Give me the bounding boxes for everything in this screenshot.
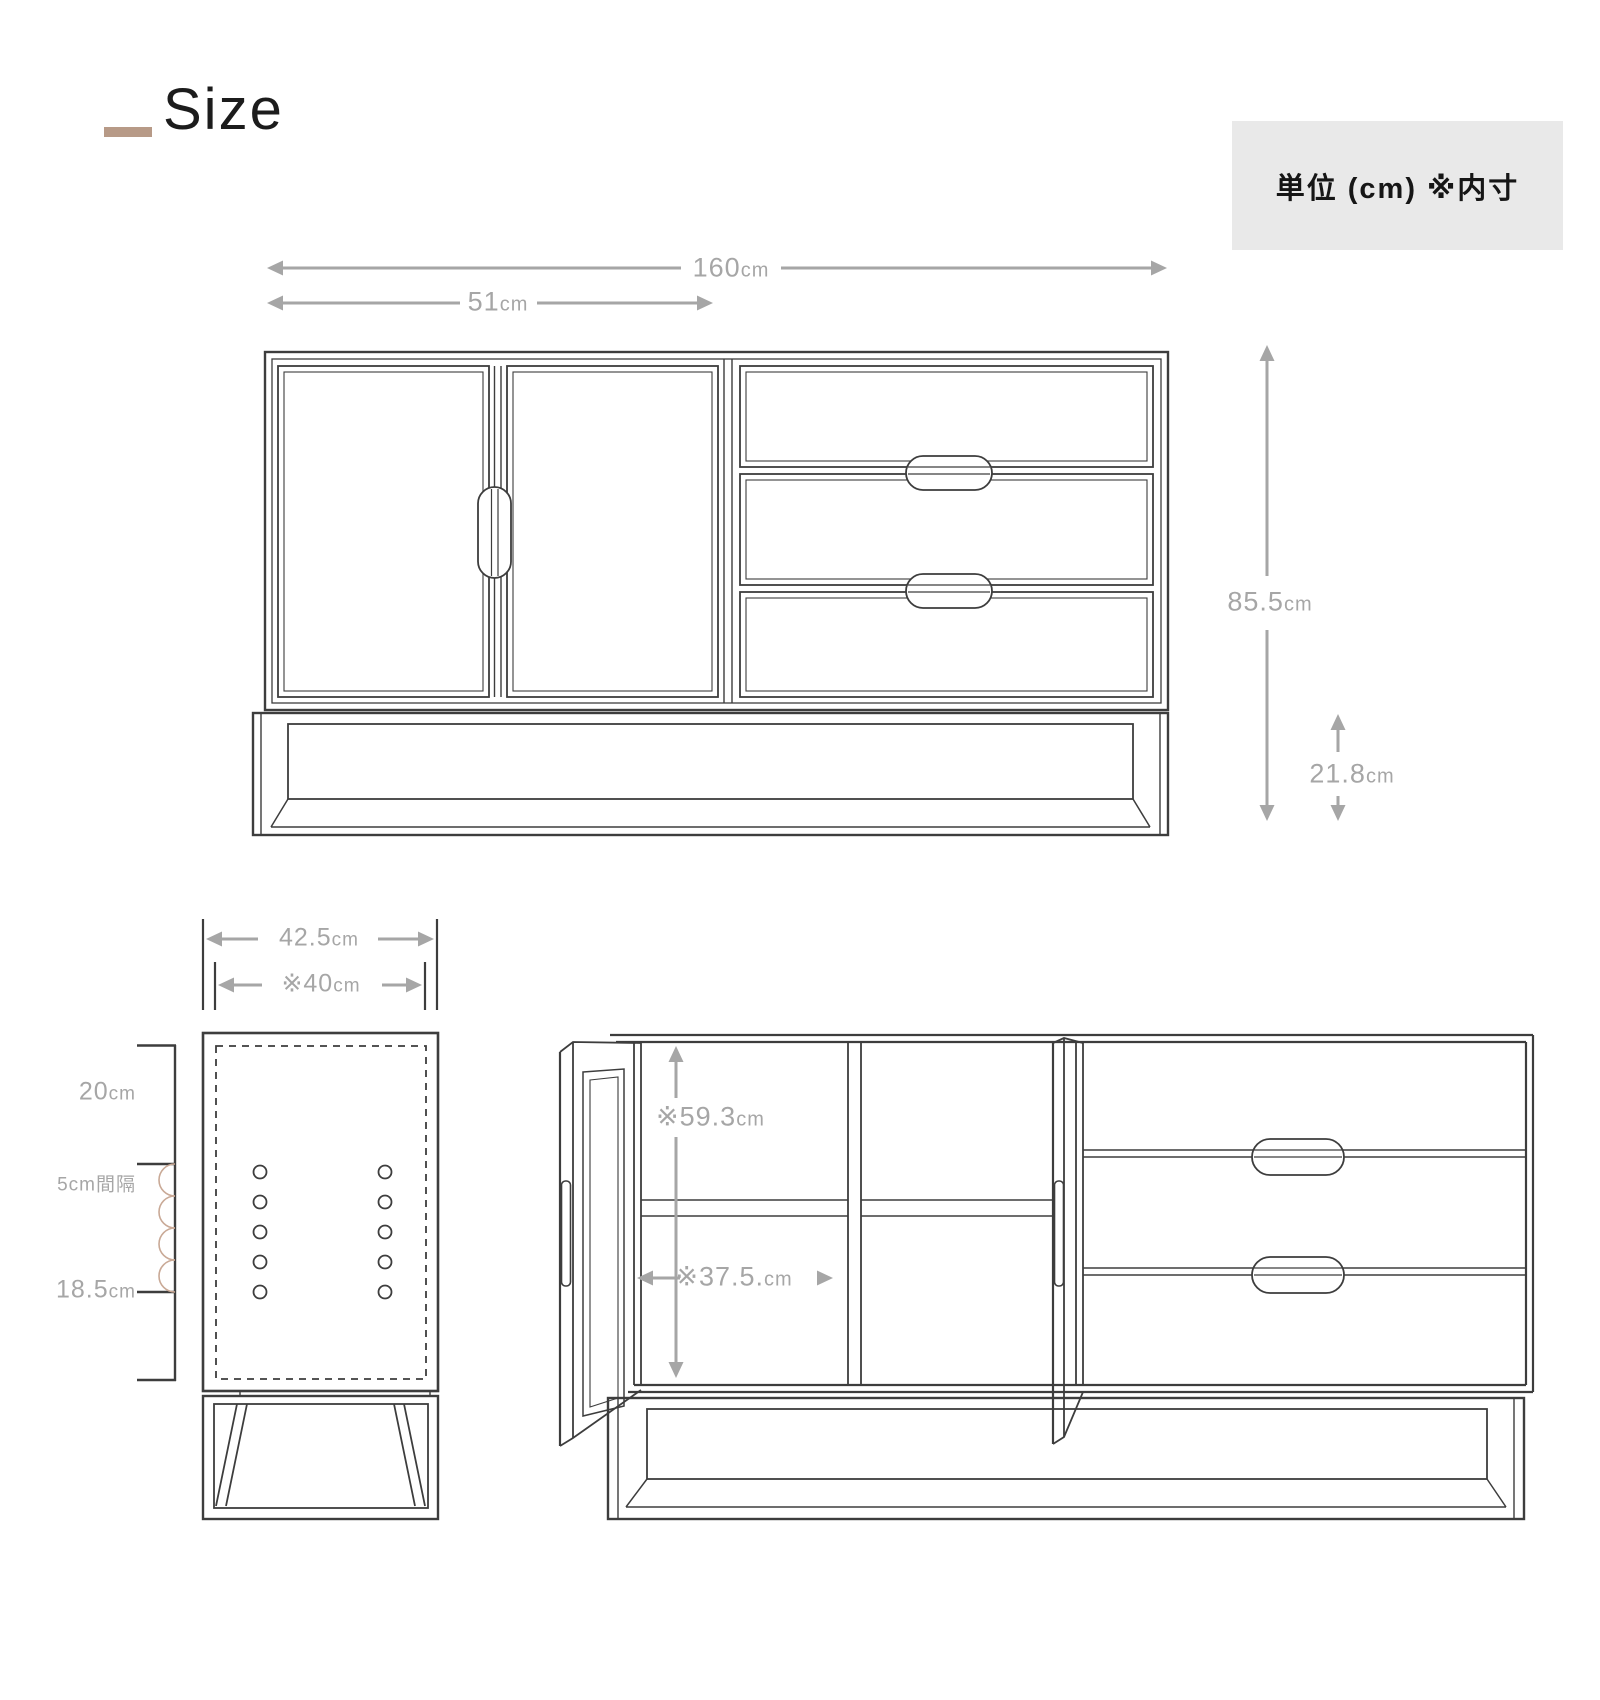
door-handle-pill (478, 487, 511, 578)
furniture-line-art (0, 0, 1600, 1700)
dim-label-depth: 42.5cm (279, 926, 359, 951)
dim-label-top-offset: 20cm (79, 1080, 136, 1105)
title-accent-dash (104, 127, 152, 137)
interior-shelf (641, 1200, 1053, 1216)
hole-interval-arcs (159, 1164, 175, 1292)
side-base (203, 1391, 438, 1519)
unit-note-text: 単位 (cm) ※内寸 (1276, 165, 1520, 207)
open-view-handle-pill-bottom (1252, 1257, 1344, 1293)
front-base (253, 713, 1168, 835)
open-right-door (1053, 1038, 1083, 1444)
page-title: Size (163, 76, 284, 143)
dim-label-total-width: 160cm (693, 255, 770, 282)
dim-label-hole-pitch: 5cm間隔 (57, 1176, 136, 1195)
drawer-handle-pill-top (906, 456, 992, 490)
dim-label-door-width: 51cm (468, 289, 529, 316)
dim-label-total-height: 85.5cm (1227, 589, 1312, 616)
shelf-pin-holes (254, 1166, 392, 1299)
dim-label-inner-width: ※37.5.cm (675, 1264, 792, 1291)
front-drawer-1 (740, 366, 1153, 467)
open-view-base (608, 1398, 1524, 1519)
front-door-left (278, 366, 489, 697)
open-left-door-handle (562, 1181, 571, 1286)
dim-label-bottom-offset: 18.5cm (56, 1278, 136, 1303)
dim-label-base-height: 21.8cm (1309, 761, 1394, 788)
dim-label-inner-height: ※59.3cm (656, 1104, 765, 1131)
unit-note-box: 単位 (cm) ※内寸 (1232, 121, 1563, 250)
open-left-door (560, 1042, 641, 1446)
side-view (137, 919, 438, 1519)
size-diagram-page: Size 単位 (cm) ※内寸 160cm 51cm 85.5cm 21.8c… (0, 0, 1600, 1700)
dim-inner-height-arrow (669, 1046, 684, 1378)
open-view-handle-pill-top (1252, 1139, 1344, 1175)
center-divider (848, 1042, 861, 1385)
side-measure-bracket (137, 1045, 176, 1381)
front-door-right (507, 366, 718, 697)
front-view (253, 352, 1168, 835)
drawer-handle-pill-bottom (906, 574, 992, 608)
dim-total-height-arrow (1260, 345, 1275, 821)
open-right-door-handle (1055, 1181, 1064, 1286)
inner-depth-dashed-outline (216, 1046, 426, 1379)
dim-label-inner-depth: ※40cm (281, 972, 360, 997)
